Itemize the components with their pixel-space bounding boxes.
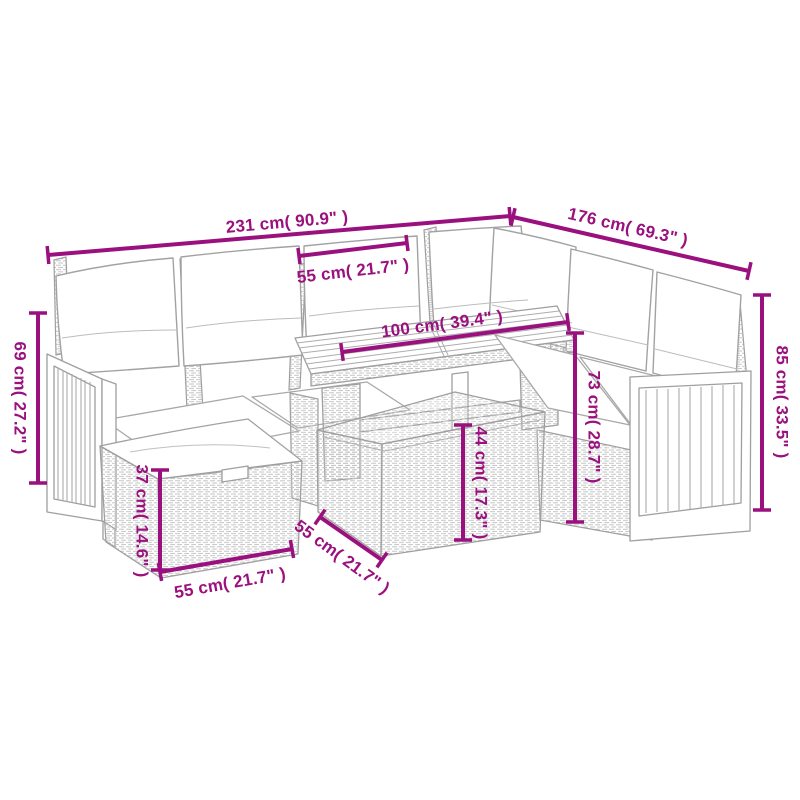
dimension-diagram: 231 cm( 90.9" ) 55 cm( 21.7" ) 176 cm( 6…: [0, 0, 800, 800]
dim-label-right-back-height: 85 cm( 33.5" ): [774, 346, 791, 459]
dim-line-right-back-height: [753, 295, 771, 510]
right-armrest-panel: [630, 371, 751, 541]
furniture-line-art: [0, 0, 800, 800]
dim-label-table-height: 73 cm( 28.7" ): [586, 371, 603, 484]
back-cushion: [181, 246, 303, 366]
back-cushion: [56, 258, 179, 374]
dim-label-front-box-height: 44 cm( 17.3" ): [473, 427, 490, 540]
back-cushion: [566, 249, 653, 371]
dim-line-left-back-height: [29, 313, 47, 483]
dim-label-ottoman-height: 37 cm( 14.6" ): [134, 465, 151, 578]
dim-label-left-back-height: 69 cm( 27.2" ): [12, 342, 29, 455]
